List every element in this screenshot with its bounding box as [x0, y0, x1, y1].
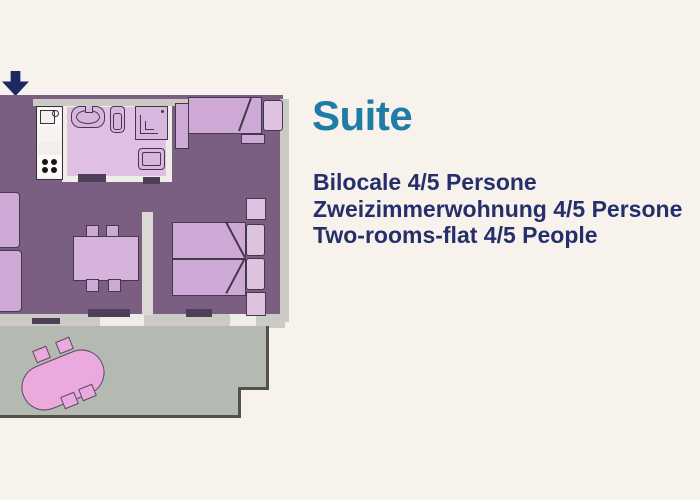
bidet-icon: [138, 148, 165, 170]
caption-italian: Bilocale 4/5 Persone: [313, 169, 682, 196]
door-threshold: [88, 309, 130, 317]
wall-right: [280, 99, 289, 322]
nightstand: [246, 198, 266, 220]
wall-top: [33, 99, 191, 106]
stove-icon: [38, 155, 61, 177]
kitchen-counter: [38, 126, 61, 143]
page-title: Suite: [312, 92, 412, 140]
bathroom-door-opening: [78, 174, 106, 182]
pillow: [246, 224, 265, 256]
bed-step: [241, 134, 265, 144]
door-threshold: [186, 309, 212, 317]
door-threshold: [32, 318, 60, 324]
shower-icon: [135, 106, 168, 140]
suite-card: { "text": { "title": "Suite", "captions"…: [0, 0, 700, 500]
kitchen-unit: [36, 106, 63, 180]
nightstand: [246, 292, 266, 316]
caption-english: Two-rooms-flat 4/5 People: [313, 222, 682, 249]
bed-divider-line: [172, 258, 246, 260]
caption-german: Zweizimmerwohnung 4/5 Persone: [313, 196, 682, 223]
pillow: [246, 258, 265, 290]
bath-sink-icon: [71, 106, 105, 128]
chair: [86, 279, 99, 292]
toilet-icon: [110, 106, 125, 133]
dining-table: [73, 236, 139, 281]
chair: [108, 279, 121, 292]
pillow: [263, 100, 283, 131]
wall-divider: [142, 212, 153, 315]
kitchen-sink-icon: [38, 108, 61, 127]
sofa: [0, 192, 20, 248]
caption-block: Bilocale 4/5 Persone Zweizimmerwohnung 4…: [313, 169, 682, 249]
closet: [175, 103, 189, 149]
sofa: [0, 250, 22, 312]
single-bed: [188, 97, 262, 134]
kitchen-counter: [38, 142, 61, 156]
entrance-arrow-icon: [2, 71, 29, 96]
floor-plan: [0, 0, 300, 430]
wall-notch: [143, 177, 160, 184]
